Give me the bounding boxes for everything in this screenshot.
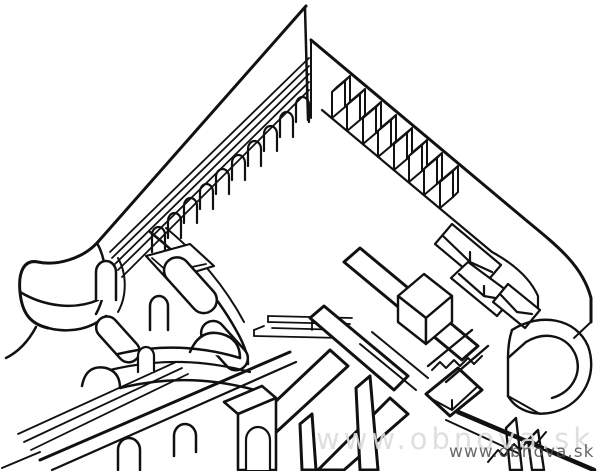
bastion-cutaway-drawing (0, 0, 600, 471)
foreground-gallery (2, 347, 296, 470)
figure-canvas: www.obnova.sk www.obnova.sk (0, 0, 600, 471)
interior-partition-walls (256, 248, 544, 470)
vaulted-casemates (82, 228, 262, 392)
counterfort-piers (332, 76, 458, 208)
casemate-arch-arcade (152, 97, 309, 252)
